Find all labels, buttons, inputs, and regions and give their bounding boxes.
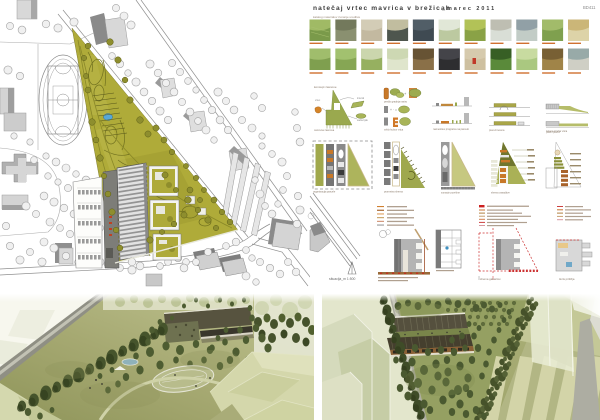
svg-text:shema gabaritov: shema gabaritov: [480, 277, 501, 281]
svg-text:zunanje površine: zunanje površine: [441, 192, 461, 195]
svg-text:vrtec: vrtec: [315, 99, 321, 102]
svg-text:shema zasaditve: shema zasaditve: [491, 192, 510, 195]
svg-text:katalog materialov zunanje ure: katalog materialov zunanje ureditve: [313, 15, 361, 19]
svg-text:tloris pritličja: tloris pritličja: [559, 277, 575, 281]
svg-text:osnovna zasnova: osnovna zasnova: [314, 129, 335, 132]
svg-text:namestitev programa na parcelo: namestitev programa na parcelo: [433, 128, 469, 131]
svg-text:prerezi terena: prerezi terena: [489, 129, 505, 132]
svg-text:natečaj vrtec mavrica v brežic: natečaj vrtec mavrica v brežicah: [313, 5, 451, 12]
svg-text:prometna shema: prometna shema: [384, 191, 403, 194]
svg-text:travnik: travnik: [357, 97, 365, 100]
svg-text:situacija_m 1:500: situacija_m 1:500: [329, 277, 356, 281]
svg-text:+ · =: + · =: [390, 108, 397, 112]
svg-text:predlo gradnja rastro: predlo gradnja rastro: [384, 101, 408, 104]
svg-text:koncept zasnove: koncept zasnove: [314, 85, 337, 89]
svg-text:_marec 2011: _marec 2011: [441, 6, 496, 12]
svg-text:vzklo kubus vrtca: vzklo kubus vrtca: [384, 129, 404, 132]
svg-text:organizacija parcele: organizacija parcele: [313, 191, 336, 194]
svg-text:BD411: BD411: [583, 5, 596, 10]
svg-text:prečni prerez: prečni prerez: [546, 131, 561, 134]
svg-text:sadovnjak: sadovnjak: [357, 119, 369, 122]
